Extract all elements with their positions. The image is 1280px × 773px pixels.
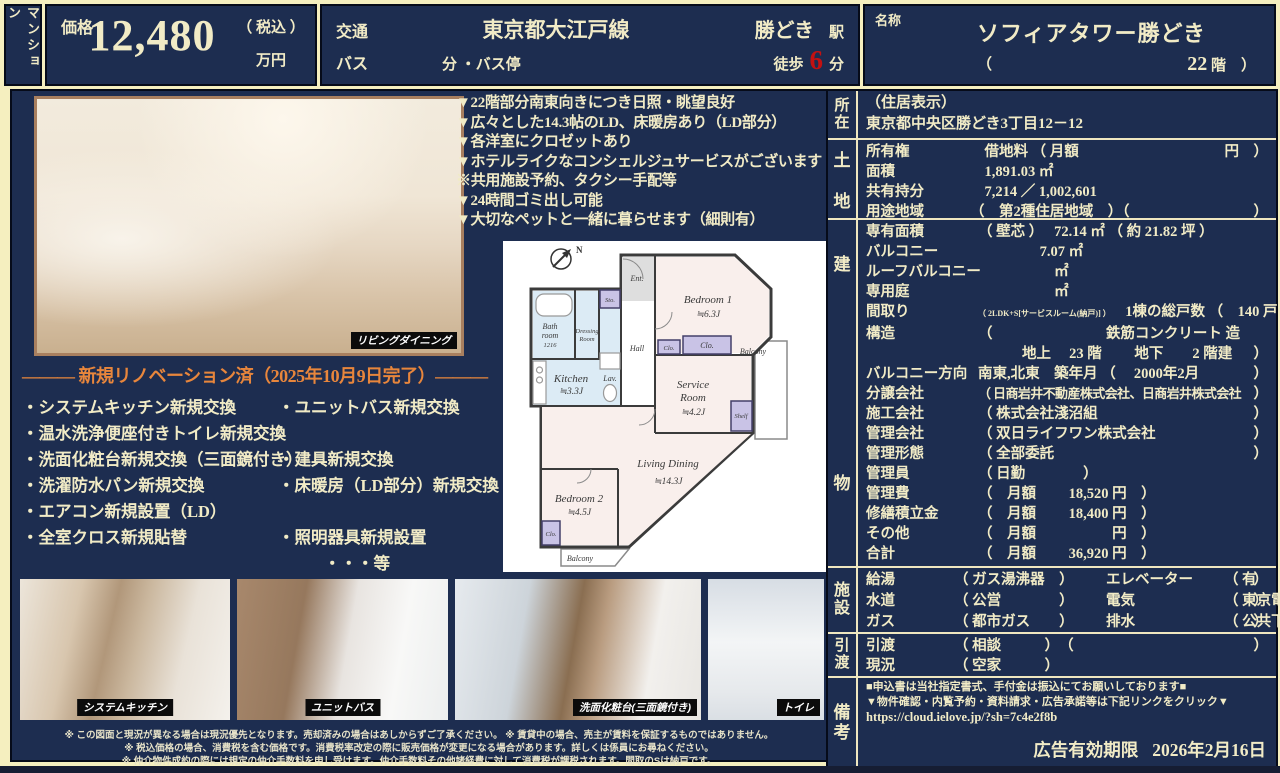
bath-photo: ユニットバス (237, 579, 448, 720)
renovation-row: ・全室クロス新規貼替・照明器具新規設置 (22, 525, 482, 551)
toilet-photo-label: トイレ (777, 699, 821, 716)
building-row: 管理形態（ 全部委託） (866, 444, 1268, 464)
left-panel: リビングダイニング ▼22階部分南東向きにつき日照・眺望良好 ▼広々とした14.… (10, 89, 828, 762)
building-row: その他（ 月額 円 ） (866, 524, 1268, 544)
transport-label: 交通 (336, 18, 408, 42)
section-label-land: 土 地 (828, 140, 858, 218)
bedroom1-label: Bedroom 1 (684, 294, 732, 306)
service-room-label: Service (677, 379, 709, 391)
building-row: 専有面積（ 壁芯 ） 72.14 ㎡ （ 約 21.82 坪 ） (866, 222, 1268, 242)
transport-row-walk: バス 分 ・バス停 徒歩6分 (336, 45, 844, 76)
svg-text:≒14.3J: ≒14.3J (654, 477, 684, 487)
closet-3-label: Clo. (545, 531, 556, 538)
floorplan-svg: N Ent. Bedroom 1 ≒6.3J Bath room 1216 Dr… (503, 241, 826, 572)
main-photo-label: リビングダイニング (351, 332, 458, 349)
feature-item: ▼広々とした14.3帖のLD、床暖房あり（LD部分） (456, 114, 828, 134)
disclaimer-line: ※ 税込価格の場合、消費税を含む価格です。消費税率改定の際に販売価格が変更になる… (12, 742, 826, 755)
transport-box: 交通 東京都大江戸線 勝どき 駅 バス 分 ・バス停 徒歩6分 (320, 4, 860, 86)
building-row: 分譲会社（ 日商岩井不動産株式会社、日商岩井株式会社） (866, 384, 1268, 404)
section-label-handover: 引 渡 (828, 634, 858, 676)
building-row-madori: 間取り（ 2LDK+S[サービスルーム(納戸)] ） 1棟の総戸数 （ 140 … (866, 302, 1268, 324)
handover-row: 引渡（ 相談 ） （） (866, 636, 1268, 656)
building-row: 管理会社（ 双日ライフワン株式会社） (866, 424, 1268, 444)
svg-text:Room: Room (578, 336, 594, 343)
feature-list: ▼22階部分南東向きにつき日照・眺望良好 ▼広々とした14.3帖のLD、床暖房あ… (456, 94, 828, 231)
renovation-row: ・洗面化粧台新規交換（三面鏡付き）・建具新規交換 (22, 447, 482, 473)
building-row: 修繕積立金（ 月額 18,400 円 ） (866, 504, 1268, 524)
walk-time: 徒歩6分 (704, 45, 844, 76)
remarks-line-2: ▼物件確認・内覧予約・資料請求・広告承諾等は下記リンクをクリック▼ (866, 695, 1268, 710)
station: 勝どき 駅 (704, 14, 844, 43)
address: 東京都中央区勝どき3丁目12－12 (866, 114, 1268, 135)
building-row-structure: 構造（鉄筋コンクリート 造 (866, 324, 1268, 344)
building-row: ルーフバルコニー ㎡ (866, 262, 1268, 282)
svg-text:1216: 1216 (544, 342, 558, 349)
bedroom2-label: Bedroom 2 (555, 493, 604, 505)
land-row: 用途地域（ 第2種住居地域 ）（） (866, 202, 1268, 222)
handover-row: 現況（ 空家 ） (866, 656, 1268, 676)
ad-validity: 広告有効期限2026年2月16日 (1033, 737, 1266, 762)
dressing-label: Dressing (574, 328, 599, 335)
building-row: 専用庭 ㎡ (866, 282, 1268, 302)
remarks-line-1: ■申込書は当社指定書式、手付金は振込にてお願いしております■ (866, 680, 1268, 695)
bus-detail: 分 ・バス停 (408, 53, 704, 74)
kitchen-photo-label: システムキッチン (77, 699, 173, 716)
walk-minutes: 6 (803, 45, 829, 75)
section-label-location: 所 在 (828, 91, 858, 138)
svg-text:≒6.3J: ≒6.3J (696, 310, 721, 320)
building-row: バルコニー方向南東,北東 築年月 （ 2000年2月） (866, 364, 1268, 384)
compass-icon: N (551, 245, 583, 269)
facility-row: 水道（ 公営 ）電気（ 東京電力） (866, 591, 1268, 612)
vanity-photo: 洗面化粧台(三面鏡付き) (455, 579, 701, 720)
price-unit: （ 税込 ） 万円 (231, 16, 311, 70)
svg-text:≒4.5J: ≒4.5J (567, 508, 592, 518)
ent-label: Ent. (629, 274, 643, 283)
bathroom-label: Bath (542, 322, 557, 331)
section-label-remarks: 備 考 (828, 678, 858, 768)
floor-line: （ 22 階 ） (977, 53, 1256, 76)
address-display-note: （住居表示） (866, 93, 1268, 114)
toilet-photo: トイレ (708, 579, 824, 720)
toilet-fixture (604, 385, 617, 402)
header: マンション 価格 12,480 （ 税込 ） 万円 交通 東京都大江戸線 勝どき… (4, 4, 1276, 86)
building-name: ソフィアタワー勝どき (977, 16, 1206, 48)
property-link[interactable]: https://cloud.ielove.jp/?sh=7c4e2f8b (866, 709, 1268, 726)
kitchen-photo: システムキッチン (20, 579, 230, 720)
land-row: 所有権 借地料 （ 月額円 ） (866, 142, 1268, 162)
svg-text:room: room (542, 331, 559, 340)
rail-line: 東京都大江戸線 (408, 14, 704, 44)
building-row: 管理費（ 月額 18,520 円 ） (866, 484, 1268, 504)
renovation-row: ・エアコン新規設置（LD） (22, 499, 482, 525)
price-unit-label: 万円 (231, 49, 311, 70)
balcony-bottom-label: Balcony (567, 554, 594, 563)
renovation-etc: ・・・等 (22, 551, 482, 577)
property-flyer: マンション 価格 12,480 （ 税込 ） 万円 交通 東京都大江戸線 勝どき… (0, 0, 1280, 773)
property-type-label: マンション (4, 6, 42, 84)
details-table: 所 在 （住居表示） 東京都中央区勝どき3丁目12－12 土 地 所有権 借地料… (826, 89, 1278, 770)
svg-text:≒3.3J: ≒3.3J (559, 387, 584, 397)
disclaimer-line: ※ この図面と現況が異なる場合は現況優先となります。売却済みの場合はあしからずご… (12, 729, 826, 742)
price-box: 価格 12,480 （ 税込 ） 万円 (45, 4, 317, 86)
facility-row: ガス（ 都市ガス ）排水（ 公共下水） (866, 612, 1268, 633)
storage-label: Sto. (605, 297, 615, 304)
balcony-right-label: Balcony (740, 347, 767, 356)
section-facilities: 施 設 給湯（ ガス湯沸器 ）エレベーター（ 有） 水道（ 公営 ）電気（ 東京… (828, 566, 1276, 632)
hall-label: Hall (629, 344, 645, 353)
building-row: 管理員（ 日勤 ） (866, 464, 1268, 484)
renovation-title: ――― 新規リノベーション済（2025年10月9日完了）――― (22, 362, 482, 388)
living-dining-label: Living Dining (636, 458, 699, 470)
bathtub (536, 294, 572, 316)
name-box: 名称 ソフィアタワー勝どき （ 22 階 ） (863, 4, 1276, 86)
name-label: 名称 (875, 10, 901, 29)
section-building: 建 物 専有面積（ 壁芯 ） 72.14 ㎡ （ 約 21.82 坪 ） バルコ… (828, 218, 1276, 566)
svg-text:≒4.2J: ≒4.2J (681, 408, 706, 418)
building-row: 地上 23 階 地下 2 階建） (866, 344, 1268, 364)
section-remarks: 備 考 ■申込書は当社指定書式、手付金は振込にてお願いしております■ ▼物件確認… (828, 676, 1276, 768)
vanity-photo-label: 洗面化粧台(三面鏡付き) (573, 699, 697, 716)
disclaimer-notes: ※ この図面と現況が異なる場合は現況優先となります。売却済みの場合はあしからずご… (12, 729, 826, 768)
property-type-box: マンション (4, 4, 42, 86)
shelf-label: Shelf (735, 413, 749, 420)
building-row: バルコニー 7.07 ㎡ (866, 242, 1268, 262)
land-row: 共有持分 7,214 ／ 1,002,601 (866, 182, 1268, 202)
bottom-bar (0, 766, 1280, 773)
section-handover: 引 渡 引渡（ 相談 ） （） 現況（ 空家 ） (828, 632, 1276, 676)
renovation-row: ・システムキッチン新規交換・ユニットバス新規交換 (22, 395, 482, 421)
section-label-building: 建 物 (828, 220, 858, 566)
price-value: 12,480 (77, 10, 227, 61)
feature-item: ▼各洋室にクロゼットあり (456, 133, 828, 153)
bus-label: バス (336, 50, 408, 74)
floorplan: N Ent. Bedroom 1 ≒6.3J Bath room 1216 Dr… (503, 241, 826, 572)
section-land: 土 地 所有権 借地料 （ 月額円 ） 面積 1,891.03 ㎡ 共有持分 7… (828, 138, 1276, 218)
building-row: 合計（ 月額 36,920 円 ） (866, 544, 1268, 564)
feature-item: ▼22階部分南東向きにつき日照・眺望良好 (456, 94, 828, 114)
bath-photo-label: ユニットバス (305, 699, 380, 716)
renovation-section: ――― 新規リノベーション済（2025年10月9日完了）――― ・システムキッチ… (22, 362, 482, 577)
svg-text:N: N (576, 245, 583, 255)
land-row: 面積 1,891.03 ㎡ (866, 162, 1268, 182)
lav-label: Lav. (602, 374, 616, 383)
renovation-row: ・温水洗浄便座付きトイレ新規交換 (22, 421, 482, 447)
svg-text:Room: Room (679, 392, 706, 404)
closet-1-label: Clo. (663, 345, 674, 352)
renovation-row: ・洗濯防水パン新規交換・床暖房（LD部分）新規交換 (22, 473, 482, 499)
price-tax-note: （ 税込 ） (231, 16, 311, 37)
kitchen-label: Kitchen (553, 373, 589, 385)
transport-row-line: 交通 東京都大江戸線 勝どき 駅 (336, 14, 844, 44)
building-row: 施工会社（ 株式会社淺沼組） (866, 404, 1268, 424)
closet-2-label: Clo. (700, 341, 714, 350)
section-location: 所 在 （住居表示） 東京都中央区勝どき3丁目12－12 (828, 91, 1276, 138)
feature-item: ▼ホテルライクなコンシェルジュサービスがございます (456, 153, 828, 173)
feature-item: ▼24時間ゴミ出し可能 (456, 192, 828, 212)
floor-value: 22 階 ） (1187, 53, 1256, 76)
facility-row: 給湯（ ガス湯沸器 ）エレベーター（ 有） (866, 570, 1268, 591)
feature-item: ▼大切なペットと一緒に暮らせます（細則有） (456, 211, 828, 231)
section-label-facilities: 施 設 (828, 568, 858, 632)
feature-item: ※共用施設予約、タクシー手配等 (456, 172, 828, 192)
lavatory-sink (600, 353, 620, 369)
living-dining-photo: リビングダイニング (34, 96, 464, 356)
